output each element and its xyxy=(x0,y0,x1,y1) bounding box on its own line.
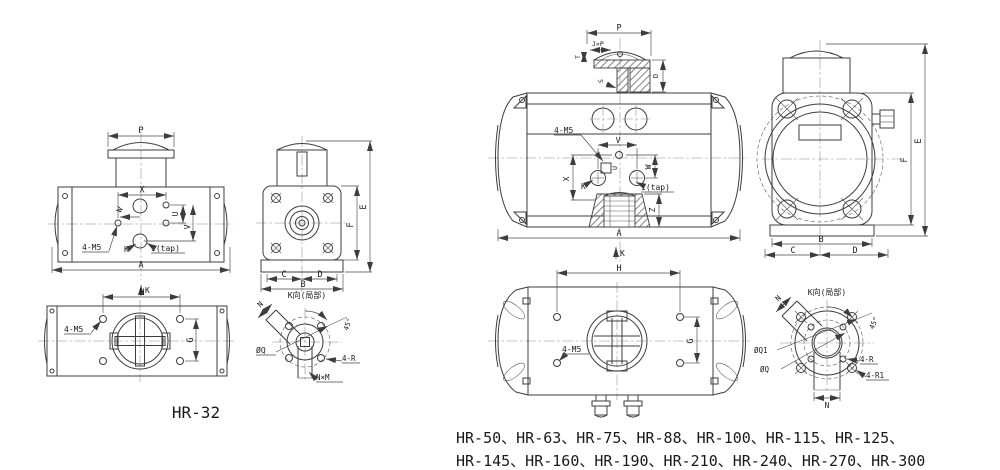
fig2-detail-label-q1: ØQ1 xyxy=(754,346,768,355)
fig2-front-label-z: Z xyxy=(648,207,657,212)
fig2-side-label-f: F xyxy=(900,157,910,162)
fig2-front-label-p: P xyxy=(616,24,621,34)
fig2-side-label-d: D xyxy=(852,246,857,256)
fig2-detail-label-q: ØQ xyxy=(760,365,770,374)
fig2-top-label-m5: 4-M5 xyxy=(562,345,581,354)
fig2-models-line1: HR-50、HR-63、HR-75、HR-88、HR-100、HR-115、HR… xyxy=(456,429,904,447)
fig2-front-label-d: D xyxy=(652,74,660,78)
fig2-front-label-m5: 4-M5 xyxy=(554,126,573,135)
fig1-top-label-m5: 4-M5 xyxy=(64,325,83,334)
fig2-front-label-t: T xyxy=(574,55,582,59)
fig2-detail-view: K向(局部) N N 45° ØQ1 ØQ 4-R 4-R1 xyxy=(754,287,889,410)
fig2-front-label-v: V xyxy=(616,136,621,145)
fig1-front-label-w: W xyxy=(115,205,125,214)
fig2-front-label-u: U xyxy=(611,166,619,170)
fig1-side-view: C D B F E xyxy=(256,136,372,292)
fig2-front-label-a: A xyxy=(616,229,621,239)
fig2-detail-label-r: 4-R xyxy=(860,355,874,364)
fig1-detail-label-r: 4-R xyxy=(342,354,356,363)
fig2-front-label-w: W xyxy=(644,164,653,169)
fig1-front-label-m5: 4-M5 xyxy=(82,243,101,252)
fig2-front-label-s: S xyxy=(597,79,605,83)
fig2-bottom-fitting-left xyxy=(592,395,610,417)
fig1-front-label-kdir: K xyxy=(145,286,150,295)
fig1-detail-view: K向(局部) N 45° ØQ 4-R N×M xyxy=(255,290,360,382)
fig1-side-label-e: E xyxy=(359,204,369,209)
fig1-top-view: H G 4-M5 xyxy=(38,288,236,382)
fig2-side-label-b: B xyxy=(818,235,823,245)
fig2-models-line2: HR-145、HR-160、HR-190、HR-210、HR-240、HR-27… xyxy=(456,452,925,470)
fig1-side-label-d: D xyxy=(317,270,322,280)
technical-drawing-canvas: P X W U V K I(tap) 4-M5 A K xyxy=(0,0,1000,470)
fig2-top-label-g: G xyxy=(686,338,696,343)
fig2-detail-label-r1: 4-R1 xyxy=(866,371,884,380)
fig2-detail-label-angle: 45° xyxy=(868,316,881,331)
fig2-top-label-h: H xyxy=(616,264,621,274)
fig1-front-label-k: K xyxy=(124,245,129,254)
fig2-front-label-itap: I(tap) xyxy=(641,183,670,192)
fig2-front-label-jxp: J×P xyxy=(592,40,604,48)
fig2-front-label-x: X xyxy=(562,176,571,181)
fig1-side-label-b: B xyxy=(300,280,305,290)
fig1-detail-label-angle: 45° xyxy=(342,317,354,332)
fig2-side-label-c: C xyxy=(790,246,795,256)
fig1-side-label-f: F xyxy=(346,222,356,227)
fig2-front-view: P J×P T D S U V 4-M5 X W K I(tap) xyxy=(488,24,748,263)
fig2-detail-label-n-bottom: N xyxy=(825,401,830,410)
fig1-detail-label-q: ØQ xyxy=(256,345,266,355)
fig1-top-label-g: G xyxy=(186,337,196,342)
fig1-top-label-h: H xyxy=(139,288,144,298)
fig2-detail-title: K向(局部) xyxy=(808,287,846,297)
fig1-front-view: P X W U V K I(tap) 4-M5 A K xyxy=(48,126,234,296)
fig1-detail-label-n: N xyxy=(255,299,265,309)
fig1-front-label-p: P xyxy=(138,126,144,136)
fig2-side-label-e: E xyxy=(914,138,924,143)
fig1-front-label-v: V xyxy=(183,224,192,229)
fig1-detail-label-nxm: N×M xyxy=(316,373,330,382)
fig1-side-label-c: C xyxy=(281,270,286,280)
fig2-front-label-kdir: K xyxy=(620,249,625,258)
fig1-front-label-x: X xyxy=(139,186,145,196)
fig2-side-view: B C D F E xyxy=(757,40,928,258)
fig1-detail-title: K向(局部) xyxy=(288,290,326,300)
fig1-front-label-a: A xyxy=(138,261,143,271)
fig2-front-label-k: K xyxy=(581,182,586,191)
fig1-front-label-u: U xyxy=(171,211,180,216)
fig2-bottom-fitting-right xyxy=(624,395,642,417)
fig2-top-view: H G 4-M5 xyxy=(488,264,750,417)
fig1-model-label: HR-32 xyxy=(172,403,220,422)
fig2-detail-label-n-slot: N xyxy=(773,293,783,303)
fig1-front-label-itap: I(tap) xyxy=(151,244,180,253)
